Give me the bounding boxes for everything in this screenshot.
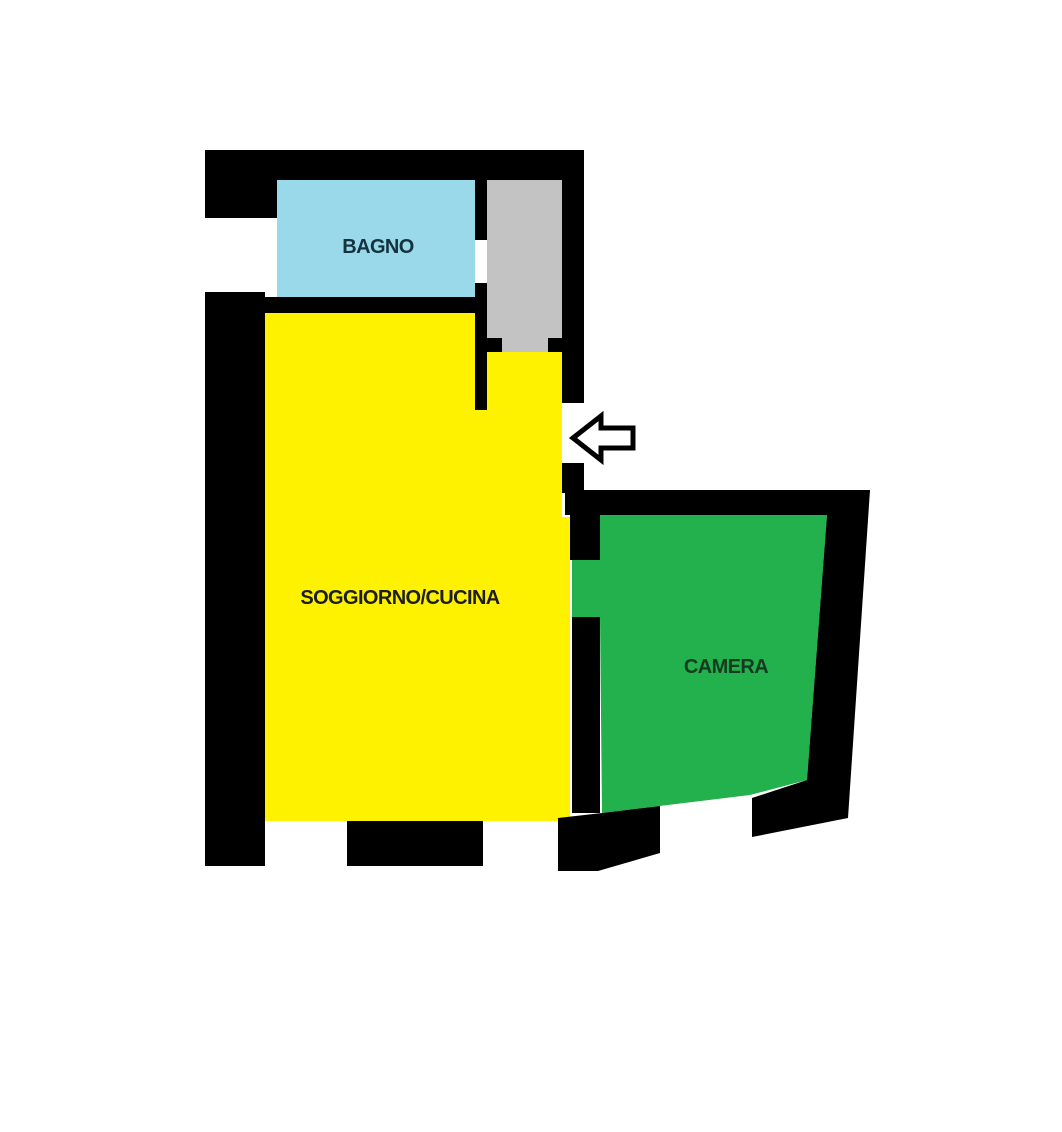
entrance-arrow-icon xyxy=(573,416,633,460)
wall-hall-door-stub-right xyxy=(548,338,563,352)
room-label-camera: CAMERA xyxy=(684,656,768,678)
wall-bagno-hall-divider-upper xyxy=(475,179,487,240)
wall-bagno-south-bar xyxy=(265,297,487,313)
wall-camera-north-bar xyxy=(565,490,870,515)
arrow-layer xyxy=(573,416,633,460)
room-soggiorno-cucina xyxy=(265,313,570,821)
wall-bagno-hall-divider-lower xyxy=(475,283,487,410)
floor-plan-canvas: BAGNOSOGGIORNO/CUCINACAMERA xyxy=(0,0,1062,1132)
wall-hall-door-stub-left xyxy=(487,338,502,352)
wall-soggiorno-camera-divider-upper xyxy=(570,513,600,560)
wall-right-wall-upper xyxy=(562,150,584,403)
wall-top-bar xyxy=(205,150,584,180)
wall-camera-south-west-wall xyxy=(558,806,660,871)
room-label-bagno: BAGNO xyxy=(342,236,413,258)
room-disimpegno xyxy=(487,180,562,352)
room-label-soggiorno-cucina: SOGGIORNO/CUCINA xyxy=(300,587,499,609)
wall-left-column xyxy=(205,292,265,866)
wall-soggiorno-camera-divider-lower xyxy=(572,617,600,813)
wall-entry-door-stub xyxy=(562,463,584,493)
wall-soggiorno-south-bar xyxy=(347,821,483,866)
floor-plan-svg: BAGNOSOGGIORNO/CUCINACAMERA xyxy=(0,0,1062,1132)
